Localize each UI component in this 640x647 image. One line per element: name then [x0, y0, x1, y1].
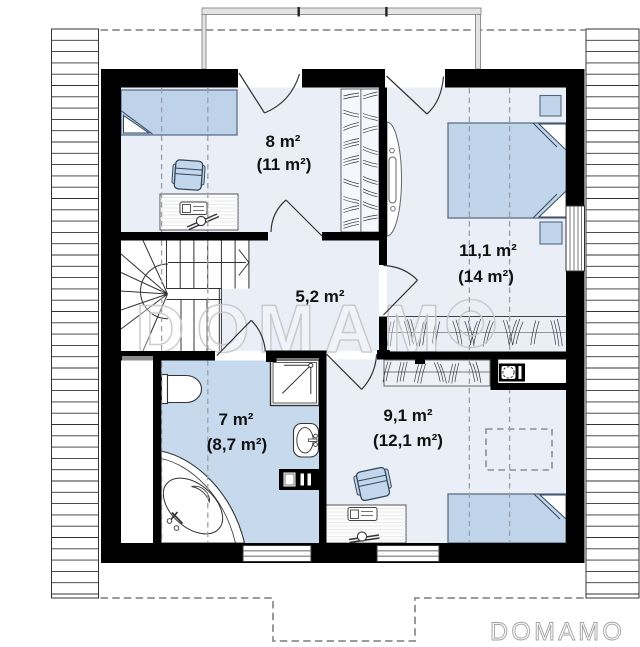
- svg-text:7 m²: 7 m²: [219, 410, 254, 429]
- svg-text:5,2 m²: 5,2 m²: [295, 287, 344, 306]
- svg-text:DOMAMO: DOMAMO: [490, 618, 625, 646]
- svg-text:(8,7 m²): (8,7 m²): [207, 435, 267, 454]
- svg-text:11,1 m²: 11,1 m²: [459, 241, 517, 260]
- svg-text:(11 m²): (11 m²): [257, 155, 312, 174]
- svg-text:(12,1 m²): (12,1 m²): [373, 431, 443, 450]
- svg-text:8 m²: 8 m²: [266, 132, 301, 151]
- svg-text:9,1 m²: 9,1 m²: [383, 406, 432, 425]
- svg-text:(14 m²): (14 m²): [458, 267, 514, 286]
